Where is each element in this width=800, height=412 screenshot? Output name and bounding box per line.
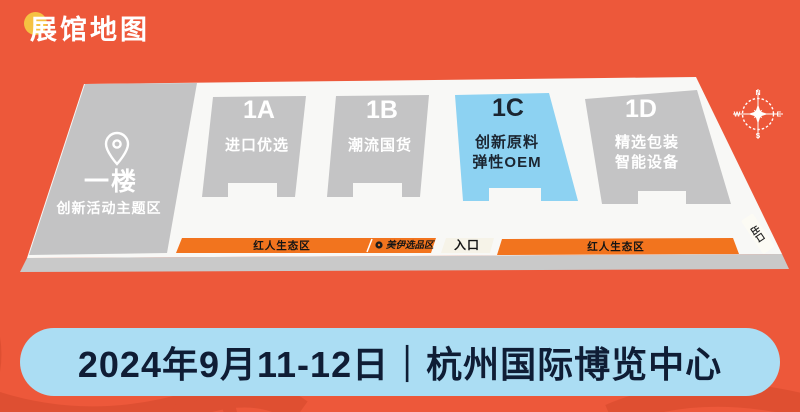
strip-influencer-right-label: 红人生态区 bbox=[587, 240, 645, 253]
selection-zone-icon-dot bbox=[378, 244, 380, 246]
strip-selection-label: 美伊选品区 bbox=[386, 239, 435, 251]
entrance-label: 入口 bbox=[454, 238, 480, 252]
hall-1a-name: 进口优选 bbox=[225, 136, 289, 154]
strip-influencer-left: 红人生态区 美伊选品区 bbox=[176, 238, 436, 253]
hall-1a-id: 1A bbox=[243, 96, 275, 124]
floor-name: 一楼 bbox=[84, 168, 138, 196]
strip-influencer-right: 红人生态区 bbox=[497, 238, 739, 255]
poster-canvas: { "header": { "title": "展馆地图" }, "map": … bbox=[0, 0, 800, 412]
page-title: 展馆地图 bbox=[30, 16, 150, 46]
hall-1d-name-line2: 智能设备 bbox=[615, 153, 679, 171]
header: 展馆地图 bbox=[30, 16, 150, 46]
event-date-venue: 2024年9月11-12日｜杭州国际博览中心 bbox=[78, 336, 722, 388]
hall-1a: 1A 进口优选 bbox=[202, 96, 306, 197]
strip-entrance: 入口 bbox=[441, 238, 494, 253]
floor-desc: 创新活动主题区 bbox=[56, 200, 162, 216]
hall-1c-name-line1: 创新原料 bbox=[474, 133, 539, 151]
compass-w: W bbox=[734, 112, 741, 119]
hall-1c-id: 1C bbox=[492, 94, 524, 122]
hall-1b: 1B 潮流国货 bbox=[327, 95, 429, 197]
hall-1d-name-line1: 精选包装 bbox=[615, 133, 679, 151]
compass-n: N bbox=[755, 90, 760, 97]
hall-1b-id: 1B bbox=[366, 96, 398, 124]
hall-1c-name-line2: 弹性OEM bbox=[472, 153, 541, 171]
compass-s: S bbox=[756, 133, 761, 140]
compass-icon: N E S W bbox=[733, 89, 783, 140]
hall-1d-id: 1D bbox=[625, 95, 657, 123]
compass-e: E bbox=[777, 112, 782, 119]
footer-banner: 2024年9月11-12日｜杭州国际博览中心 bbox=[20, 328, 780, 396]
hall-1b-name: 潮流国货 bbox=[348, 136, 412, 154]
strip-influencer-left-label: 红人生态区 bbox=[253, 239, 311, 252]
